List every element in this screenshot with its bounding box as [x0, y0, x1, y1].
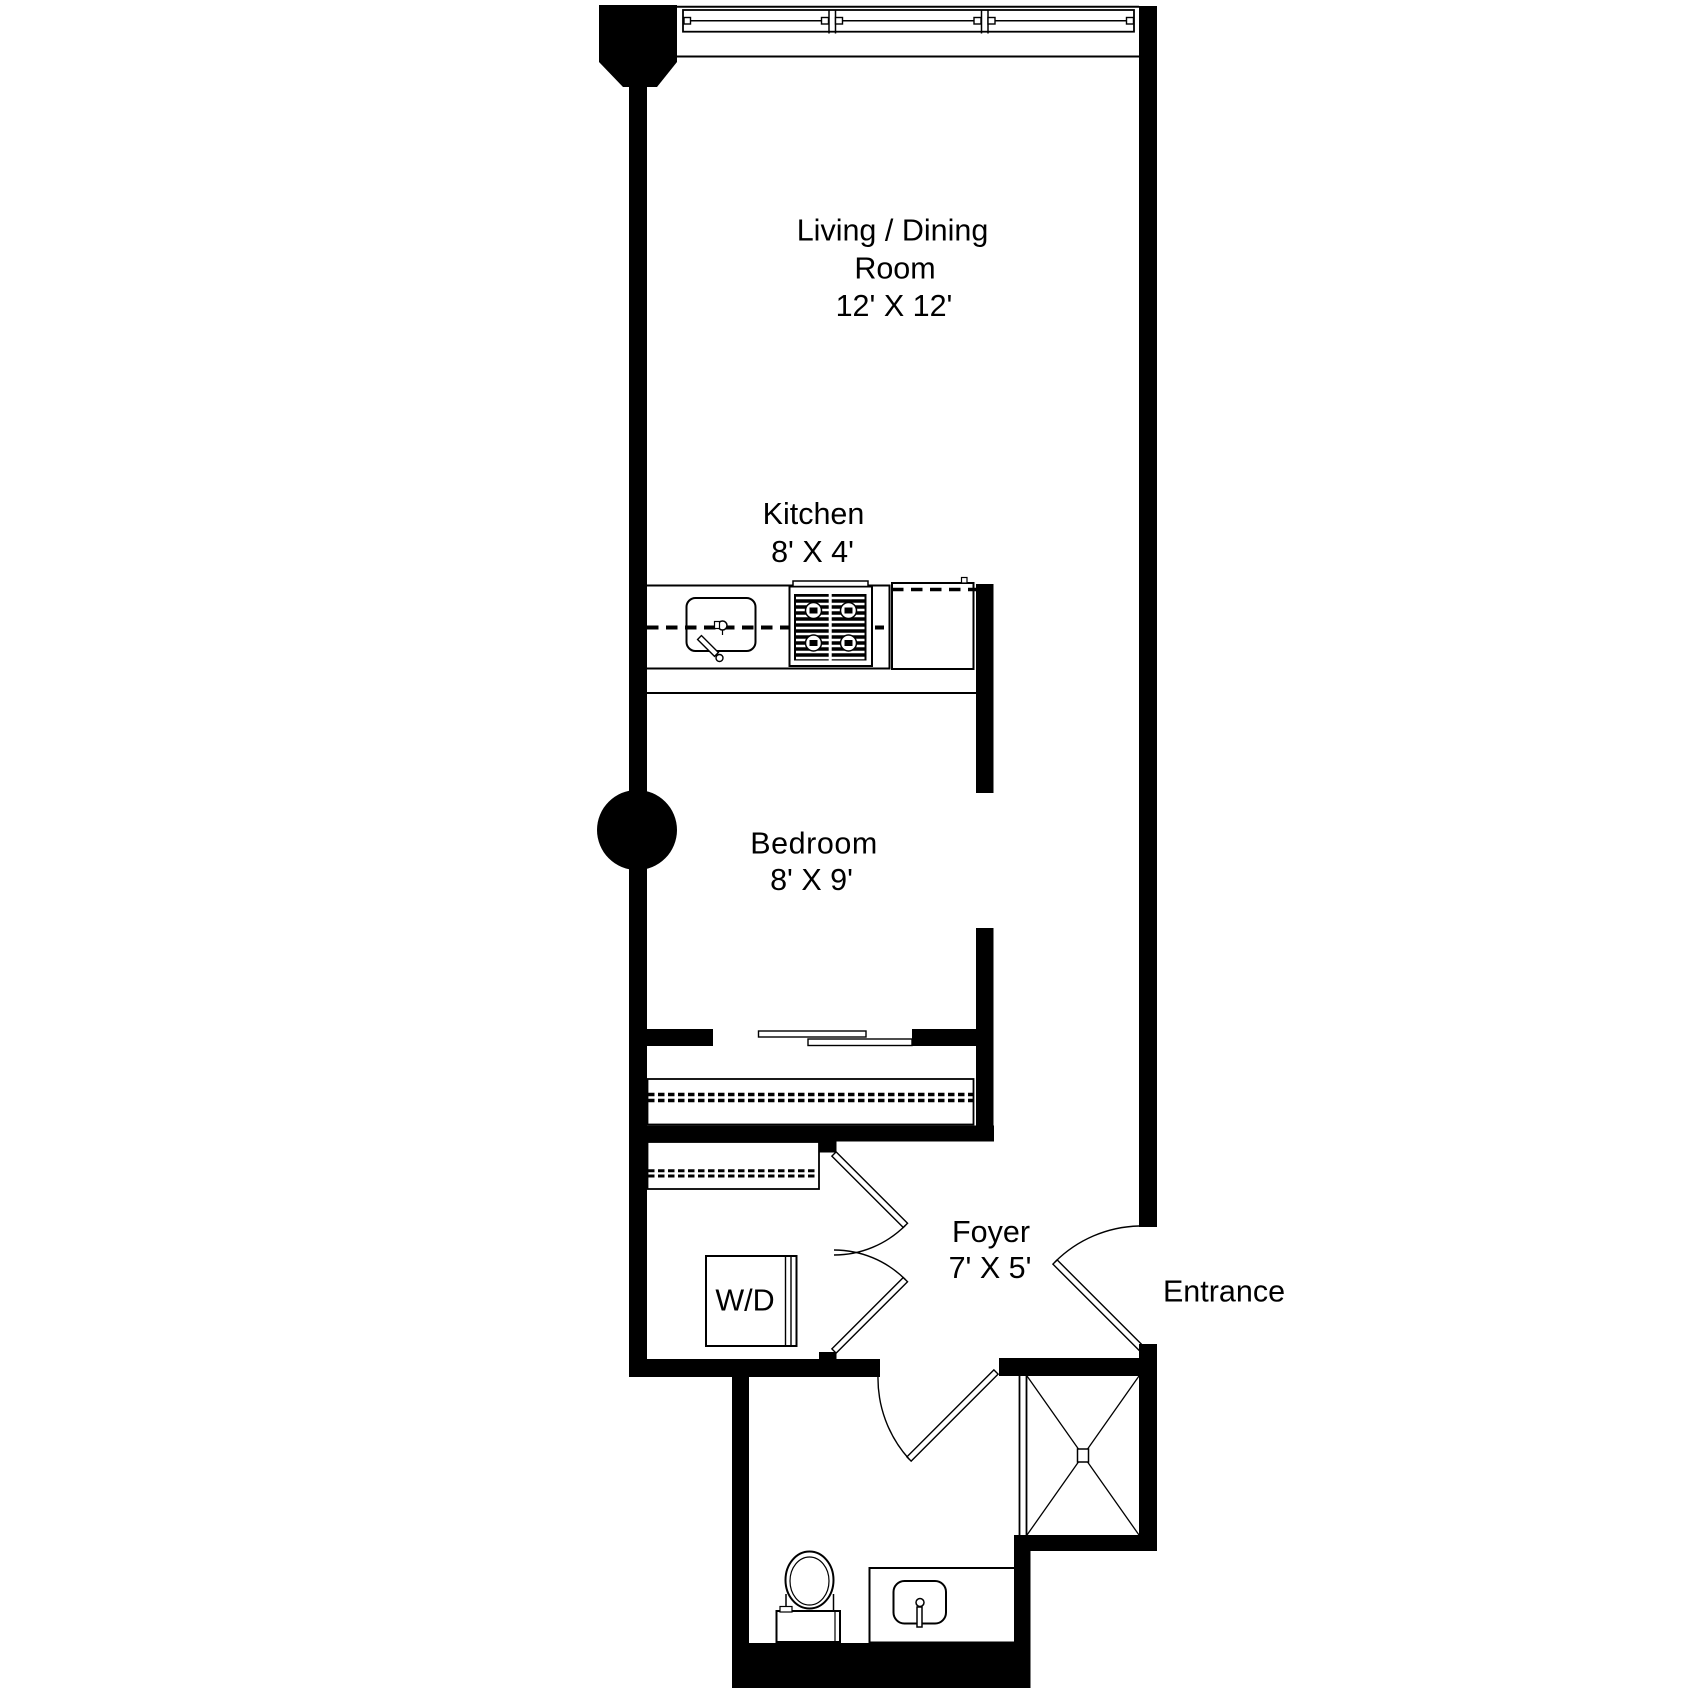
svg-text:Foyer: Foyer [952, 1215, 1030, 1249]
svg-text:Living / Dining: Living / Dining [797, 214, 989, 248]
svg-text:8' X 4': 8' X 4' [771, 535, 854, 569]
svg-text:W/D: W/D [715, 1284, 774, 1318]
svg-text:Bedroom: Bedroom [750, 827, 878, 861]
svg-text:8' X 9': 8' X 9' [770, 863, 853, 897]
svg-text:12' X 12': 12' X 12' [836, 289, 953, 323]
svg-text:Entrance: Entrance [1163, 1275, 1285, 1309]
svg-text:Room: Room [854, 252, 935, 286]
svg-text:Kitchen: Kitchen [763, 497, 865, 531]
svg-text:7' X 5': 7' X 5' [949, 1251, 1032, 1285]
